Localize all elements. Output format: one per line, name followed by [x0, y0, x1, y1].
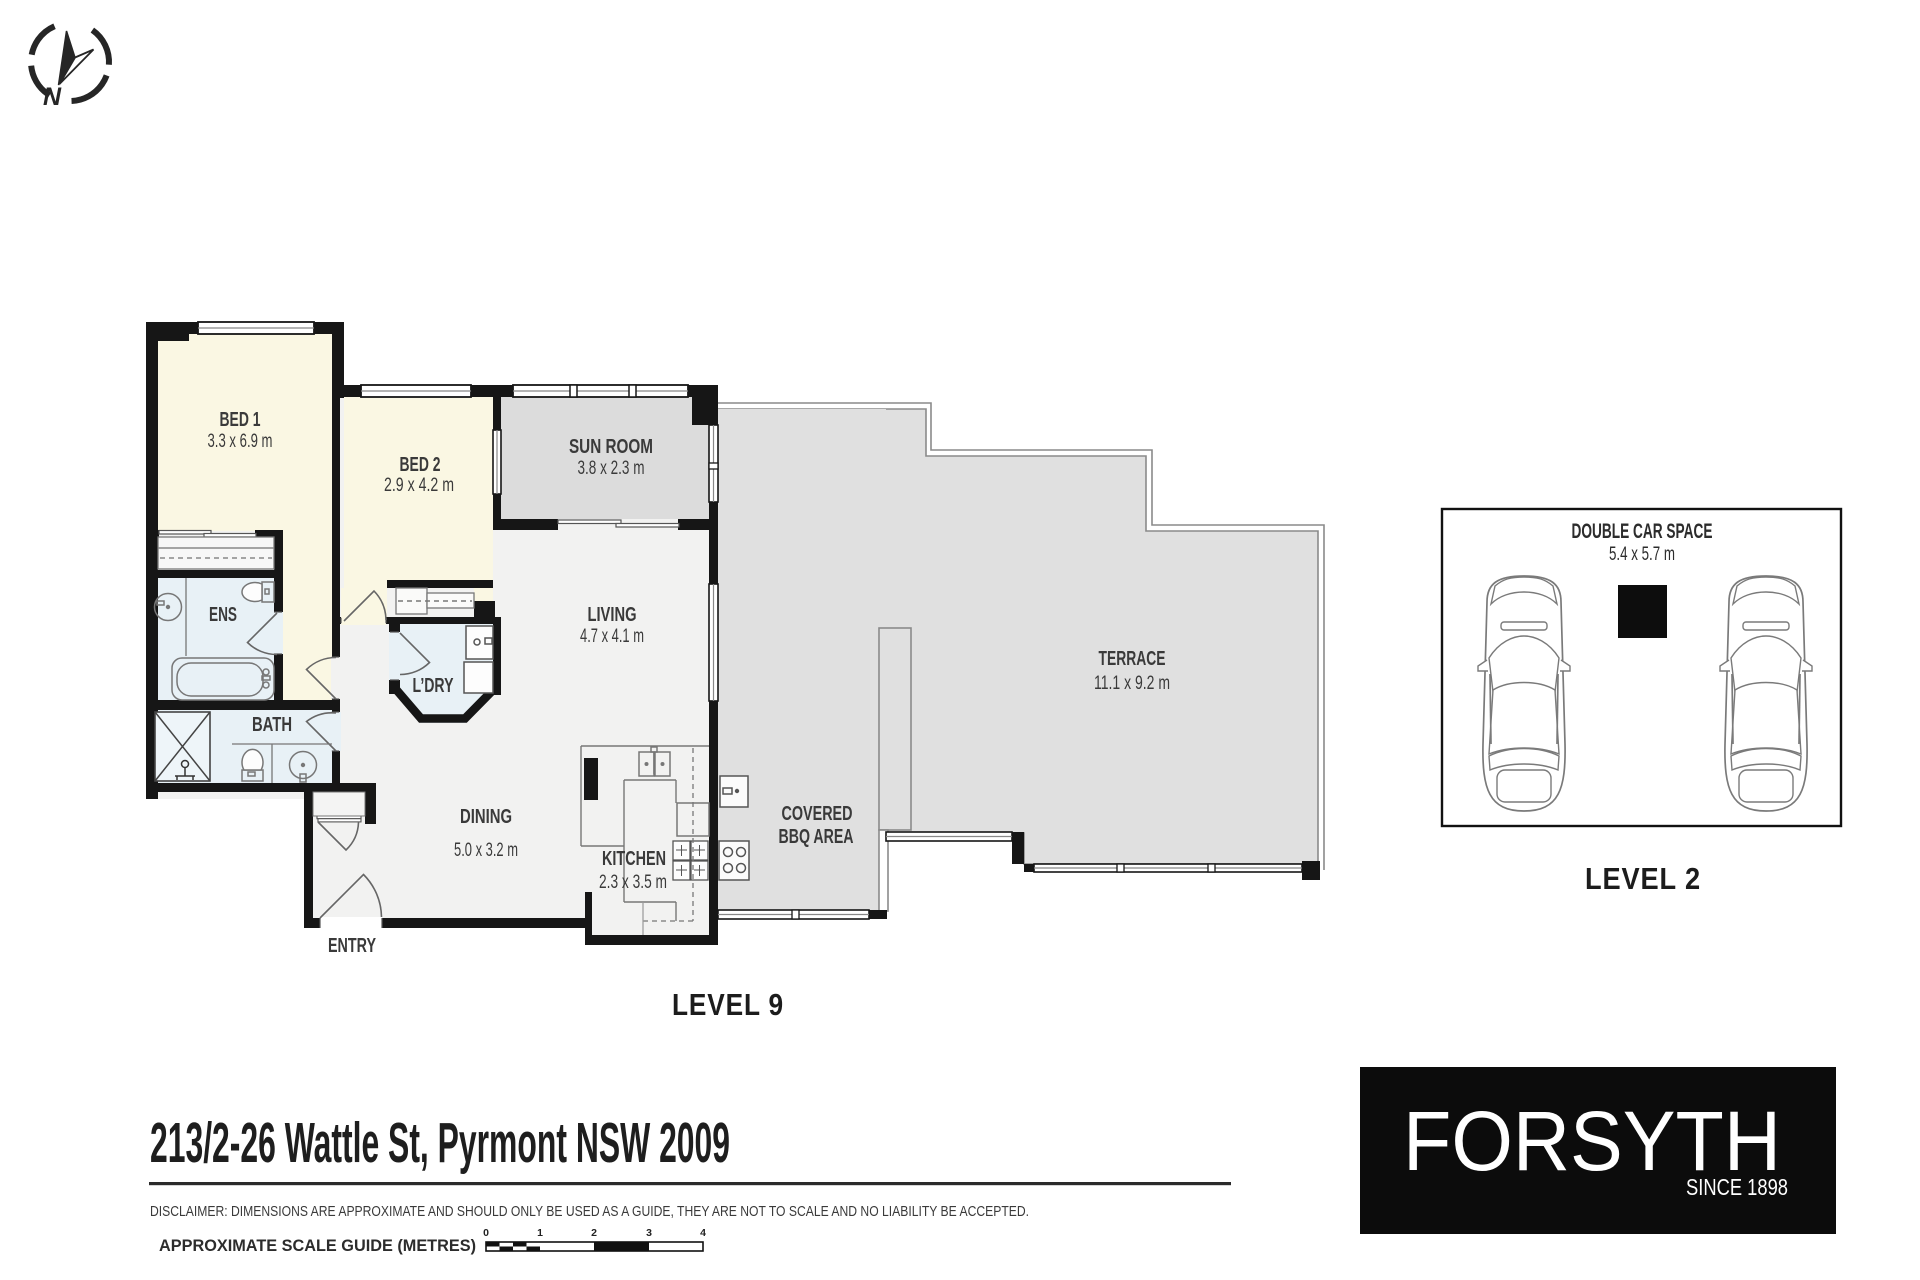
svg-text:LIVING: LIVING [588, 604, 637, 626]
svg-text:BATH: BATH [252, 714, 292, 736]
svg-text:213/2-26 Wattle St, Pyrmont NS: 213/2-26 Wattle St, Pyrmont NSW 2009 [150, 1111, 730, 1175]
svg-text:5.0 x 3.2 m: 5.0 x 3.2 m [454, 840, 518, 861]
svg-text:3: 3 [646, 1227, 652, 1239]
svg-text:DOUBLE CAR SPACE: DOUBLE CAR SPACE [1572, 520, 1713, 543]
svg-text:5.4 x 5.7 m: 5.4 x 5.7 m [1609, 544, 1675, 565]
svg-text:2: 2 [591, 1227, 597, 1239]
svg-text:TERRACE: TERRACE [1099, 648, 1166, 670]
svg-text:COVERED: COVERED [782, 803, 853, 825]
svg-text:2.9 x 4.2 m: 2.9 x 4.2 m [384, 475, 454, 496]
svg-text:BBQ AREA: BBQ AREA [779, 826, 854, 848]
svg-text:ENTRY: ENTRY [328, 935, 376, 957]
svg-text:N: N [43, 83, 62, 111]
svg-text:1: 1 [537, 1227, 543, 1239]
svg-text:BED 2: BED 2 [400, 454, 441, 476]
svg-text:3.3 x 6.9 m: 3.3 x 6.9 m [208, 431, 273, 452]
svg-text:DISCLAIMER: DIMENSIONS ARE APP: DISCLAIMER: DIMENSIONS ARE APPROXIMATE A… [150, 1204, 1029, 1220]
svg-text:KITCHEN: KITCHEN [602, 848, 666, 870]
svg-text:BED 1: BED 1 [220, 409, 261, 431]
svg-text:DINING: DINING [460, 806, 512, 828]
svg-text:3.8 x 2.3 m: 3.8 x 2.3 m [578, 458, 645, 479]
svg-text:LEVEL 9: LEVEL 9 [672, 987, 784, 1022]
svg-text:ENS: ENS [209, 604, 237, 626]
svg-text:4: 4 [700, 1227, 706, 1239]
svg-text:2.3 x 3.5 m: 2.3 x 3.5 m [599, 872, 667, 893]
svg-text:L’DRY: L’DRY [413, 675, 454, 697]
svg-text:SINCE 1898: SINCE 1898 [1686, 1174, 1788, 1200]
svg-text:SUN ROOM: SUN ROOM [569, 436, 653, 458]
svg-text:11.1 x 9.2 m: 11.1 x 9.2 m [1094, 673, 1170, 694]
svg-text:APPROXIMATE SCALE GUIDE (METRE: APPROXIMATE SCALE GUIDE (METRES) [159, 1237, 476, 1255]
svg-text:4.7 x 4.1 m: 4.7 x 4.1 m [580, 626, 644, 647]
svg-text:LEVEL 2: LEVEL 2 [1585, 861, 1701, 896]
svg-text:0: 0 [483, 1227, 489, 1239]
